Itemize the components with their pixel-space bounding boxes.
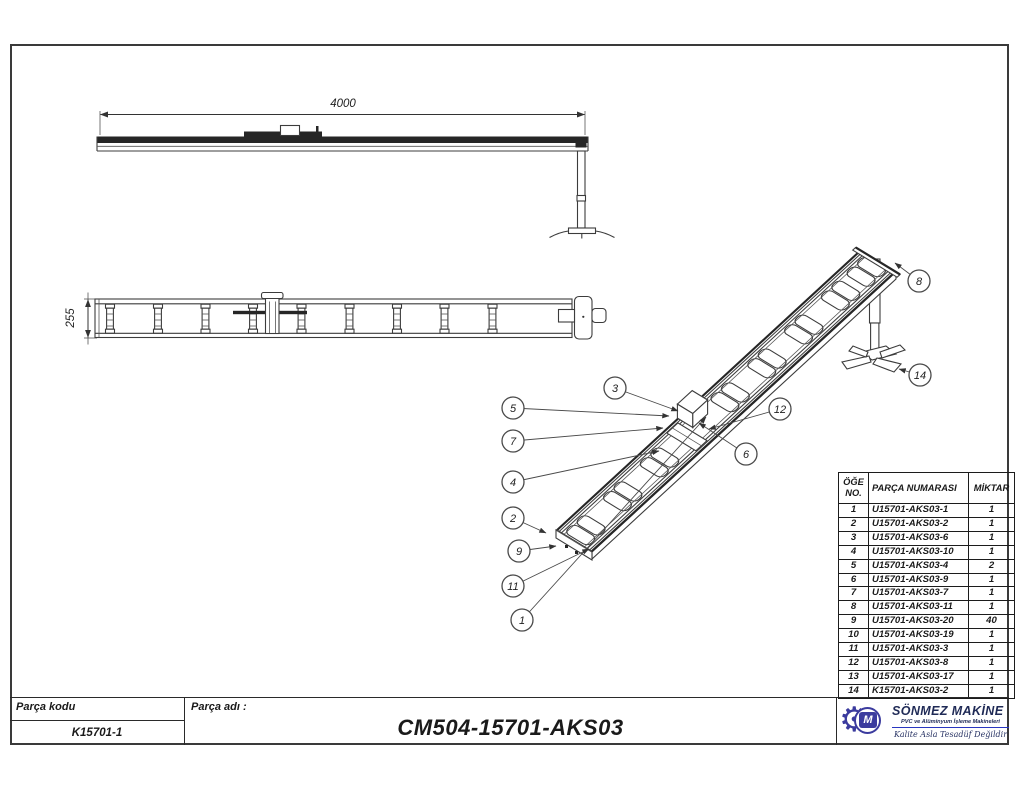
bom-cell-no: 5	[839, 559, 869, 573]
drawing-sheet: 4000 255	[0, 0, 1024, 792]
bom-cell-qty: 1	[969, 504, 1015, 518]
balloon-number-4: 4	[510, 477, 516, 489]
top-view: 4000	[97, 98, 615, 239]
bom-row: 12U15701-AKS03-81	[839, 656, 1015, 670]
bom-table: ÖĞE NO. PARÇA NUMARASI MİKTAR 1U15701-AK…	[838, 472, 1008, 699]
bom-cell-no: 13	[839, 670, 869, 684]
bom-row: 9U15701-AKS03-2040	[839, 615, 1015, 629]
bom-cell-qty: 1	[969, 656, 1015, 670]
bom-row: 1U15701-AKS03-11	[839, 504, 1015, 518]
balloon-number-3: 3	[612, 383, 619, 395]
bom-cell-qty: 40	[969, 615, 1015, 629]
bom-cell-no: 10	[839, 629, 869, 643]
bom-cell-qty: 1	[969, 670, 1015, 684]
bom-cell-no: 9	[839, 615, 869, 629]
bom-cell-qty: 2	[969, 559, 1015, 573]
company-logo: ⚙ M SÖNMEZ MAKİNE PVC ve Alüminyum İşlem…	[837, 698, 1009, 745]
drawing-title: CM504-15701-AKS03	[185, 710, 836, 745]
bom-cell-no: 11	[839, 643, 869, 657]
balloon-number-7: 7	[510, 436, 517, 448]
bom-cell-qty: 1	[969, 531, 1015, 545]
side-view: 255	[65, 293, 606, 345]
bom-cell-no: 2	[839, 517, 869, 531]
balloon-number-8: 8	[916, 276, 923, 288]
bom-cell-part: U15701-AKS03-10	[869, 545, 969, 559]
part-code-label: Parça kodu	[10, 698, 184, 721]
bom-cell-no: 1	[839, 504, 869, 518]
balloon-number-6: 6	[743, 449, 750, 461]
bom-cell-no: 12	[839, 656, 869, 670]
gear-monogram-icon: ⚙ M	[841, 700, 889, 744]
part-name-cell: Parça adı : CM504-15701-AKS03	[185, 698, 837, 745]
bom-cell-no: 7	[839, 587, 869, 601]
bom-cell-part: U15701-AKS03-20	[869, 615, 969, 629]
bom-row: 2U15701-AKS03-21	[839, 517, 1015, 531]
bom-row: 7U15701-AKS03-71	[839, 587, 1015, 601]
balloon-leader-5	[513, 408, 669, 416]
bom-cell-qty: 1	[969, 587, 1015, 601]
bom-header-row: ÖĞE NO. PARÇA NUMARASI MİKTAR	[839, 473, 1015, 504]
part-code-cell: Parça kodu K15701-1	[10, 698, 185, 745]
balloon-leader-1	[522, 417, 706, 620]
balloon-number-1: 1	[519, 615, 525, 627]
bom-cell-qty: 1	[969, 629, 1015, 643]
balloon-number-11: 11	[507, 581, 518, 593]
bom-row: 13U15701-AKS03-171	[839, 670, 1015, 684]
bom-cell-part: U15701-AKS03-1	[869, 504, 969, 518]
balloon-number-12: 12	[774, 404, 786, 416]
bom-cell-part: U15701-AKS03-11	[869, 601, 969, 615]
bom-cell-part: U15701-AKS03-7	[869, 587, 969, 601]
bom-row: 4U15701-AKS03-101	[839, 545, 1015, 559]
bom-cell-no: 4	[839, 545, 869, 559]
company-name: SÖNMEZ MAKİNE	[892, 704, 1009, 718]
balloon-number-9: 9	[516, 546, 522, 558]
bom-cell-no: 8	[839, 601, 869, 615]
balloon-leader-7	[513, 428, 663, 441]
bom-row: 11U15701-AKS03-31	[839, 643, 1015, 657]
bom-row: 5U15701-AKS03-42	[839, 559, 1015, 573]
bom-row: 10U15701-AKS03-191	[839, 629, 1015, 643]
balloon-number-5: 5	[510, 403, 517, 415]
bom-header-part-number: PARÇA NUMARASI	[869, 473, 969, 504]
bom-cell-qty: 1	[969, 517, 1015, 531]
title-block: Parça kodu K15701-1 Parça adı : CM504-15…	[10, 697, 1009, 745]
monogram-m: M	[859, 712, 877, 728]
bom-cell-no: 3	[839, 531, 869, 545]
bom-cell-qty: 1	[969, 643, 1015, 657]
bom-header-quantity: MİKTAR	[969, 473, 1015, 504]
dimension-length-label: 4000	[330, 98, 356, 110]
bom-row: 3U15701-AKS03-61	[839, 531, 1015, 545]
bom-row: 8U15701-AKS03-111	[839, 601, 1015, 615]
company-tagline: PVC ve Alüminyum İşleme Makineleri	[892, 719, 1009, 728]
bom-cell-part: U15701-AKS03-2	[869, 517, 969, 531]
bom-cell-qty: 1	[969, 545, 1015, 559]
bom-cell-no: 6	[839, 573, 869, 587]
bom-cell-part: U15701-AKS03-6	[869, 531, 969, 545]
dimension-height-label: 255	[65, 308, 77, 329]
bom-cell-part: U15701-AKS03-19	[869, 629, 969, 643]
bom-cell-part: U15701-AKS03-17	[869, 670, 969, 684]
bom-cell-part: U15701-AKS03-8	[869, 656, 969, 670]
bom-cell-part: U15701-AKS03-4	[869, 559, 969, 573]
part-code-value: K15701-1	[10, 721, 184, 745]
bom-header-item-no: ÖĞE NO.	[839, 473, 869, 504]
bom-cell-qty: 1	[969, 573, 1015, 587]
company-slogan: Kalite Asla Tesadüf Değildir	[892, 730, 1009, 739]
bom-row: 6U15701-AKS03-91	[839, 573, 1015, 587]
balloon-number-2: 2	[509, 513, 516, 525]
bom-cell-qty: 1	[969, 601, 1015, 615]
bom-cell-part: U15701-AKS03-3	[869, 643, 969, 657]
balloon-number-14: 14	[914, 370, 926, 382]
bom-cell-part: U15701-AKS03-9	[869, 573, 969, 587]
